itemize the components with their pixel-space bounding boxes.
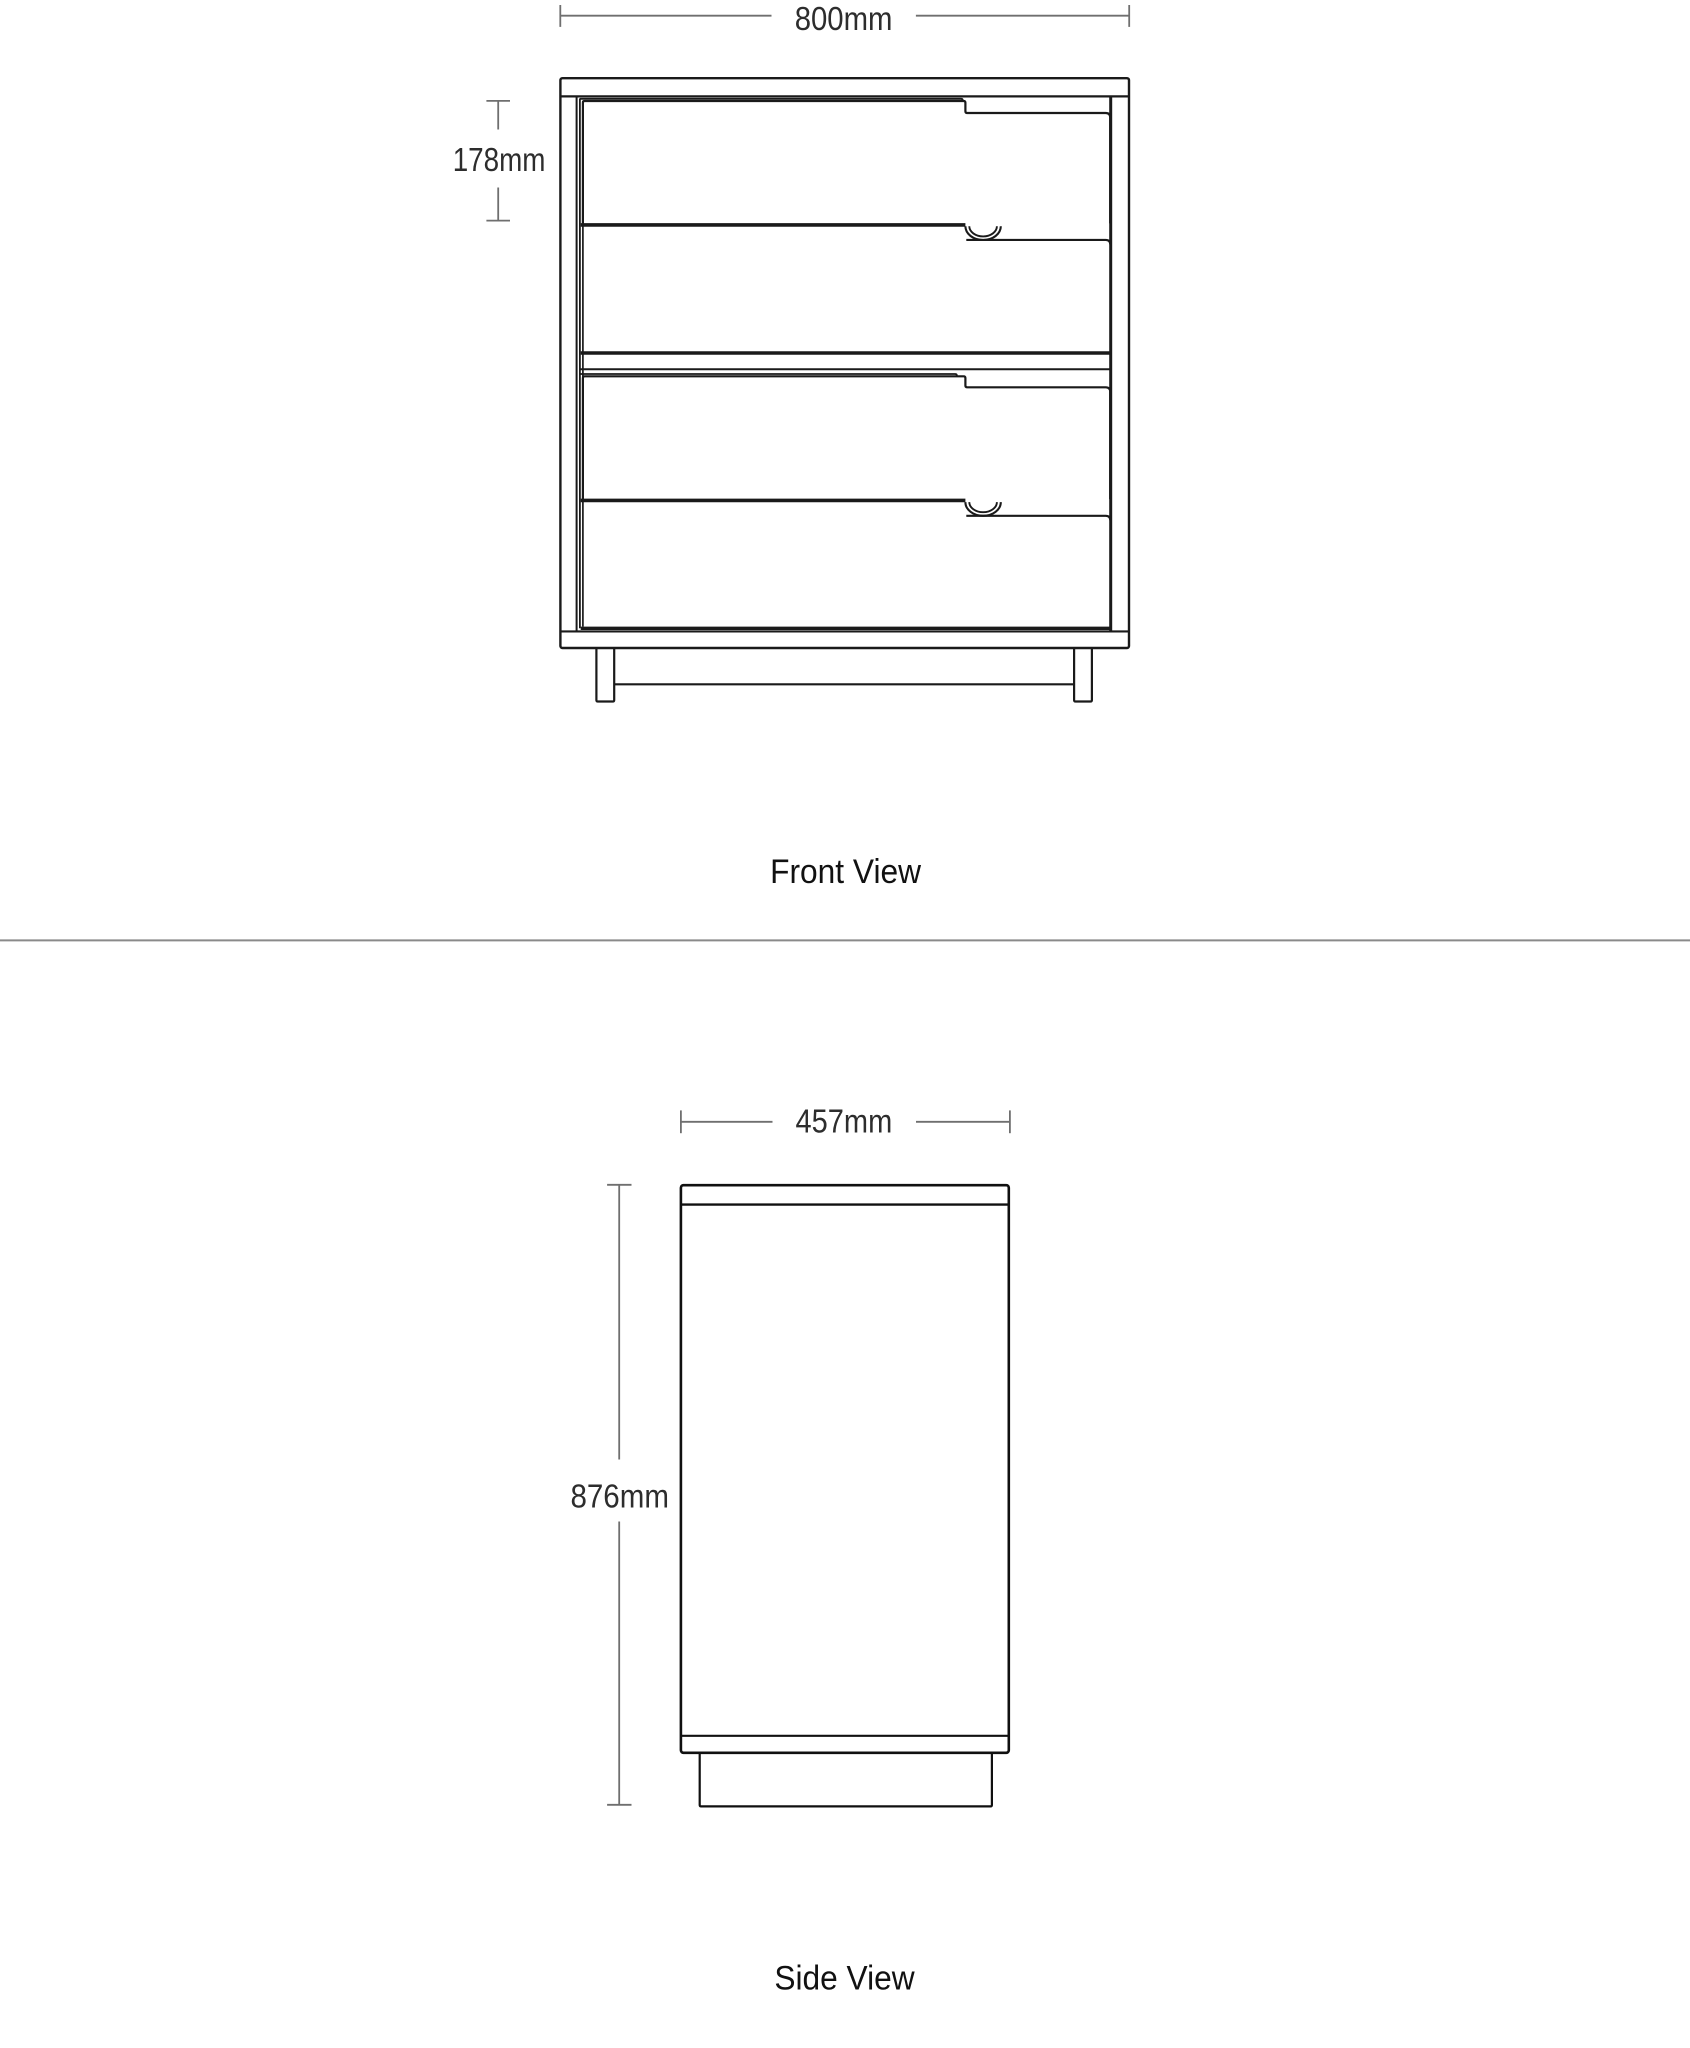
svg-text:457mm: 457mm	[796, 1102, 893, 1139]
svg-text:Front View: Front View	[770, 853, 921, 891]
svg-text:876mm: 876mm	[570, 1478, 669, 1515]
svg-text:178mm: 178mm	[453, 141, 546, 178]
svg-text:800mm: 800mm	[795, 0, 893, 37]
svg-text:Side View: Side View	[774, 1960, 914, 1998]
